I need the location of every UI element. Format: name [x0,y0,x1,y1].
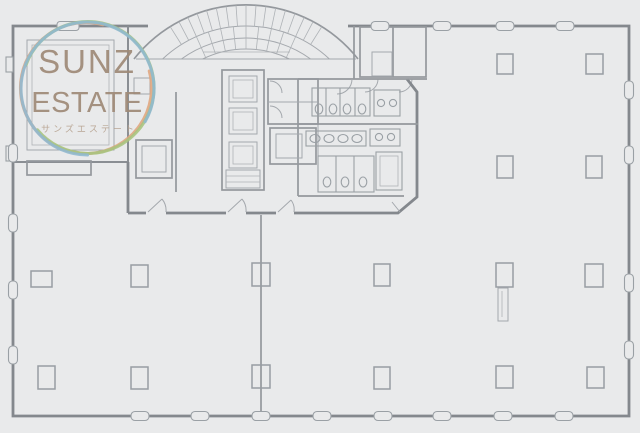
door-jamb [6,57,13,72]
floor-plan-screenshot: SUNZ ESTATE サンズエステート [0,0,640,433]
logo-word-sunz: SUNZ [38,43,136,80]
logo-word-estate: ESTATE [31,87,143,119]
floor-plan-drawing: SUNZ ESTATE サンズエステート [0,0,640,433]
logo-subtitle: サンズエステート [41,123,137,135]
